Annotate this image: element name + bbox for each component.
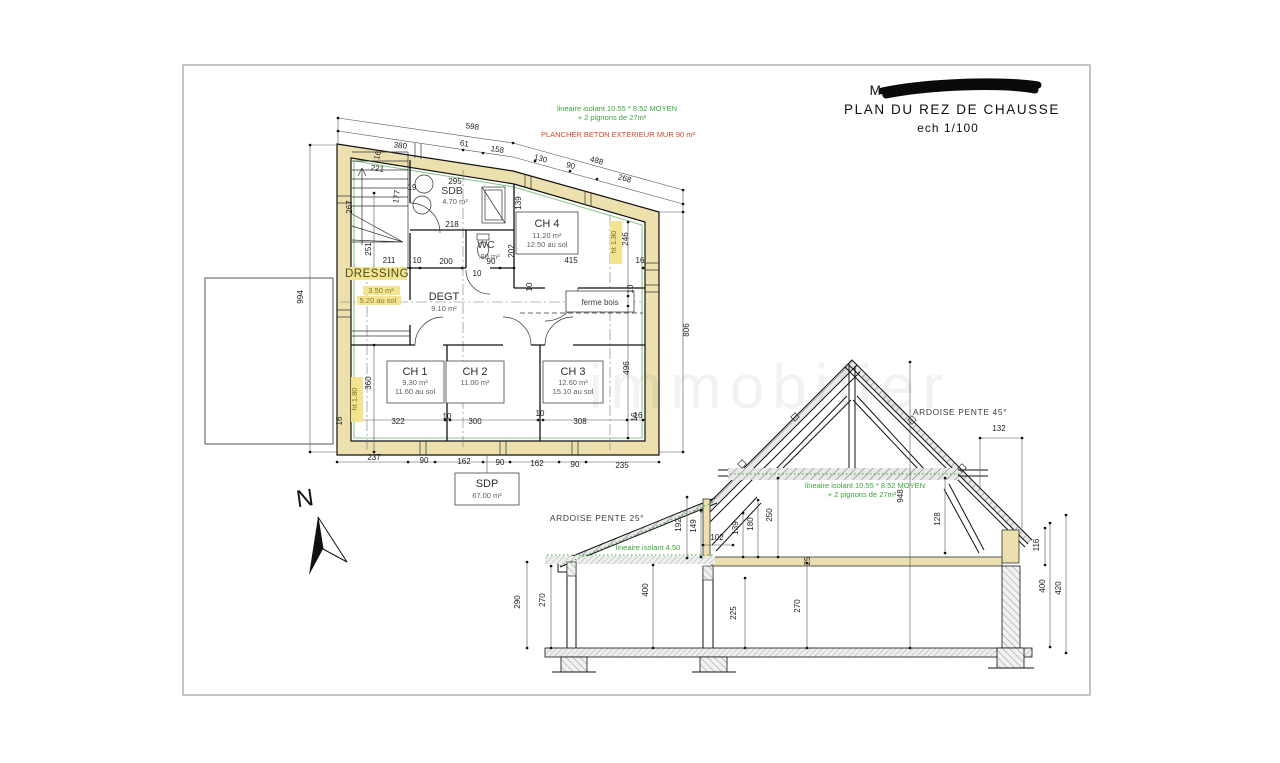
attic-floor-insulation	[712, 557, 1002, 566]
dim: 10	[413, 256, 422, 265]
dim: 806	[682, 323, 691, 337]
dim: 200	[439, 257, 453, 266]
note-plancher-beton: PLANCHER BETON EXTERIEUR MUR 90 m²	[541, 130, 696, 139]
room-ch4-sol: 12.50 au sol	[527, 240, 568, 249]
dim: 415	[564, 256, 578, 265]
room-ch1-sol: 11.60 au sol	[395, 387, 436, 396]
dim: 180	[746, 517, 755, 531]
dim: 10	[443, 412, 452, 421]
room-ch2-area: 11.00 m²	[460, 378, 490, 387]
room-degt: DEGT	[429, 291, 460, 303]
dim-ht: ht 1.80	[350, 388, 359, 411]
note-isolant-plan-1: lineaire isolant 10.55 * 8.52 MOYEN	[557, 104, 677, 113]
dim: 139	[731, 521, 740, 535]
dim: 128	[933, 512, 942, 526]
dim: 994	[296, 290, 305, 304]
dim: 420	[1054, 581, 1063, 595]
room-dressing-area: 3.50 m²	[368, 286, 394, 295]
room-ch3: CH 3	[560, 366, 585, 378]
plan-title: PLAN DU REZ DE CHAUSSE	[844, 102, 1060, 117]
dim: 290	[513, 595, 522, 609]
masked-name: M	[870, 83, 883, 98]
dim: 116	[1032, 538, 1041, 551]
dim: 25	[803, 556, 812, 565]
dim: 948	[896, 489, 905, 503]
dim: 177	[391, 189, 402, 204]
dim: 10	[626, 284, 635, 293]
dim: 139	[514, 196, 523, 210]
ardoise-pente-25: ARDOISE PENTE 25°	[550, 513, 644, 523]
dim: 149	[689, 519, 698, 533]
dim: 16	[335, 416, 344, 425]
dim: 19	[408, 183, 417, 192]
dim: 221	[370, 163, 385, 174]
room-ch1-area: 9.30 m²	[402, 378, 428, 387]
dim: 90	[420, 456, 429, 465]
dim: 400	[1038, 579, 1047, 593]
dim: 202	[507, 244, 516, 258]
dim-ht: ht 1.80	[609, 231, 618, 254]
dim: 235	[615, 461, 629, 470]
note-isolant-section-2: + 2 pignons de 27m²	[828, 490, 897, 499]
dim: 270	[538, 593, 547, 607]
plan-scale: ech 1/100	[917, 121, 979, 135]
dim: 360	[364, 376, 373, 390]
room-sdb: SDB	[441, 185, 463, 197]
dim: 211	[383, 256, 396, 265]
dim: 295	[448, 177, 462, 186]
room-sdp-area: 67.00 m²	[472, 491, 502, 500]
note-isolant-450: lineaire isolant 4.50	[616, 543, 681, 552]
room-degt-area: 9.10 m²	[431, 304, 457, 313]
dim: 162	[530, 459, 544, 468]
dim: 132	[992, 424, 1006, 433]
room-sdb-area: 4.70 m²	[442, 197, 468, 206]
note-isolant-section-1: lineaire isolant 10.55 * 8.52 MOYEN	[805, 481, 925, 490]
room-dressing: DRESSING	[345, 268, 409, 280]
room-sdp: SDP	[476, 478, 499, 490]
dim: 10	[536, 409, 545, 418]
dim: 400	[641, 583, 650, 597]
dim: 90	[496, 458, 505, 467]
dim: 246	[621, 232, 630, 246]
dim: 90	[487, 257, 496, 266]
dim: 237	[367, 453, 381, 462]
note-isolant-plan-2: + 2 pignons de 27m²	[578, 113, 647, 122]
dim: 225	[729, 606, 738, 620]
room-ch1: CH 1	[402, 366, 427, 378]
ferme-bois-label: ferme bois	[581, 298, 618, 307]
room-ch2: CH 2	[462, 366, 487, 378]
dim: 380	[393, 140, 408, 151]
dim: 61	[459, 138, 470, 148]
dim: 308	[573, 417, 587, 426]
dim: 250	[765, 508, 774, 522]
dim: 218	[445, 220, 459, 229]
dim: 267	[345, 200, 354, 214]
dim: 300	[468, 417, 482, 426]
dim: 251	[364, 242, 373, 256]
right-wall	[1002, 566, 1020, 648]
watermark: immobilier	[589, 353, 951, 422]
dim: 10	[473, 269, 482, 278]
left-knee-post	[703, 499, 710, 559]
room-wc: WC	[477, 239, 495, 251]
dim: 162	[457, 457, 471, 466]
dim: 598	[465, 121, 480, 132]
dim: 102	[710, 533, 724, 542]
room-ch3-area: 12.60 m²	[558, 378, 588, 387]
right-knee-block	[1002, 530, 1019, 563]
architectural-drawing-sheet: MPLAN DU REZ DE CHAUSSEech 1/100lineaire…	[0, 0, 1280, 763]
dim: 270	[793, 599, 802, 613]
dim: 90	[571, 460, 580, 469]
room-ch4: CH 4	[534, 218, 559, 230]
room-dressing-sol: 5.20 au sol	[360, 296, 397, 305]
dim: 192	[674, 518, 683, 532]
room-ch4-area: 11.20 m²	[532, 231, 562, 240]
room-ch3-sol: 15.10 au sol	[553, 387, 594, 396]
dim: 10	[525, 282, 534, 291]
dim: 322	[391, 417, 405, 426]
dim: 16	[636, 256, 645, 265]
